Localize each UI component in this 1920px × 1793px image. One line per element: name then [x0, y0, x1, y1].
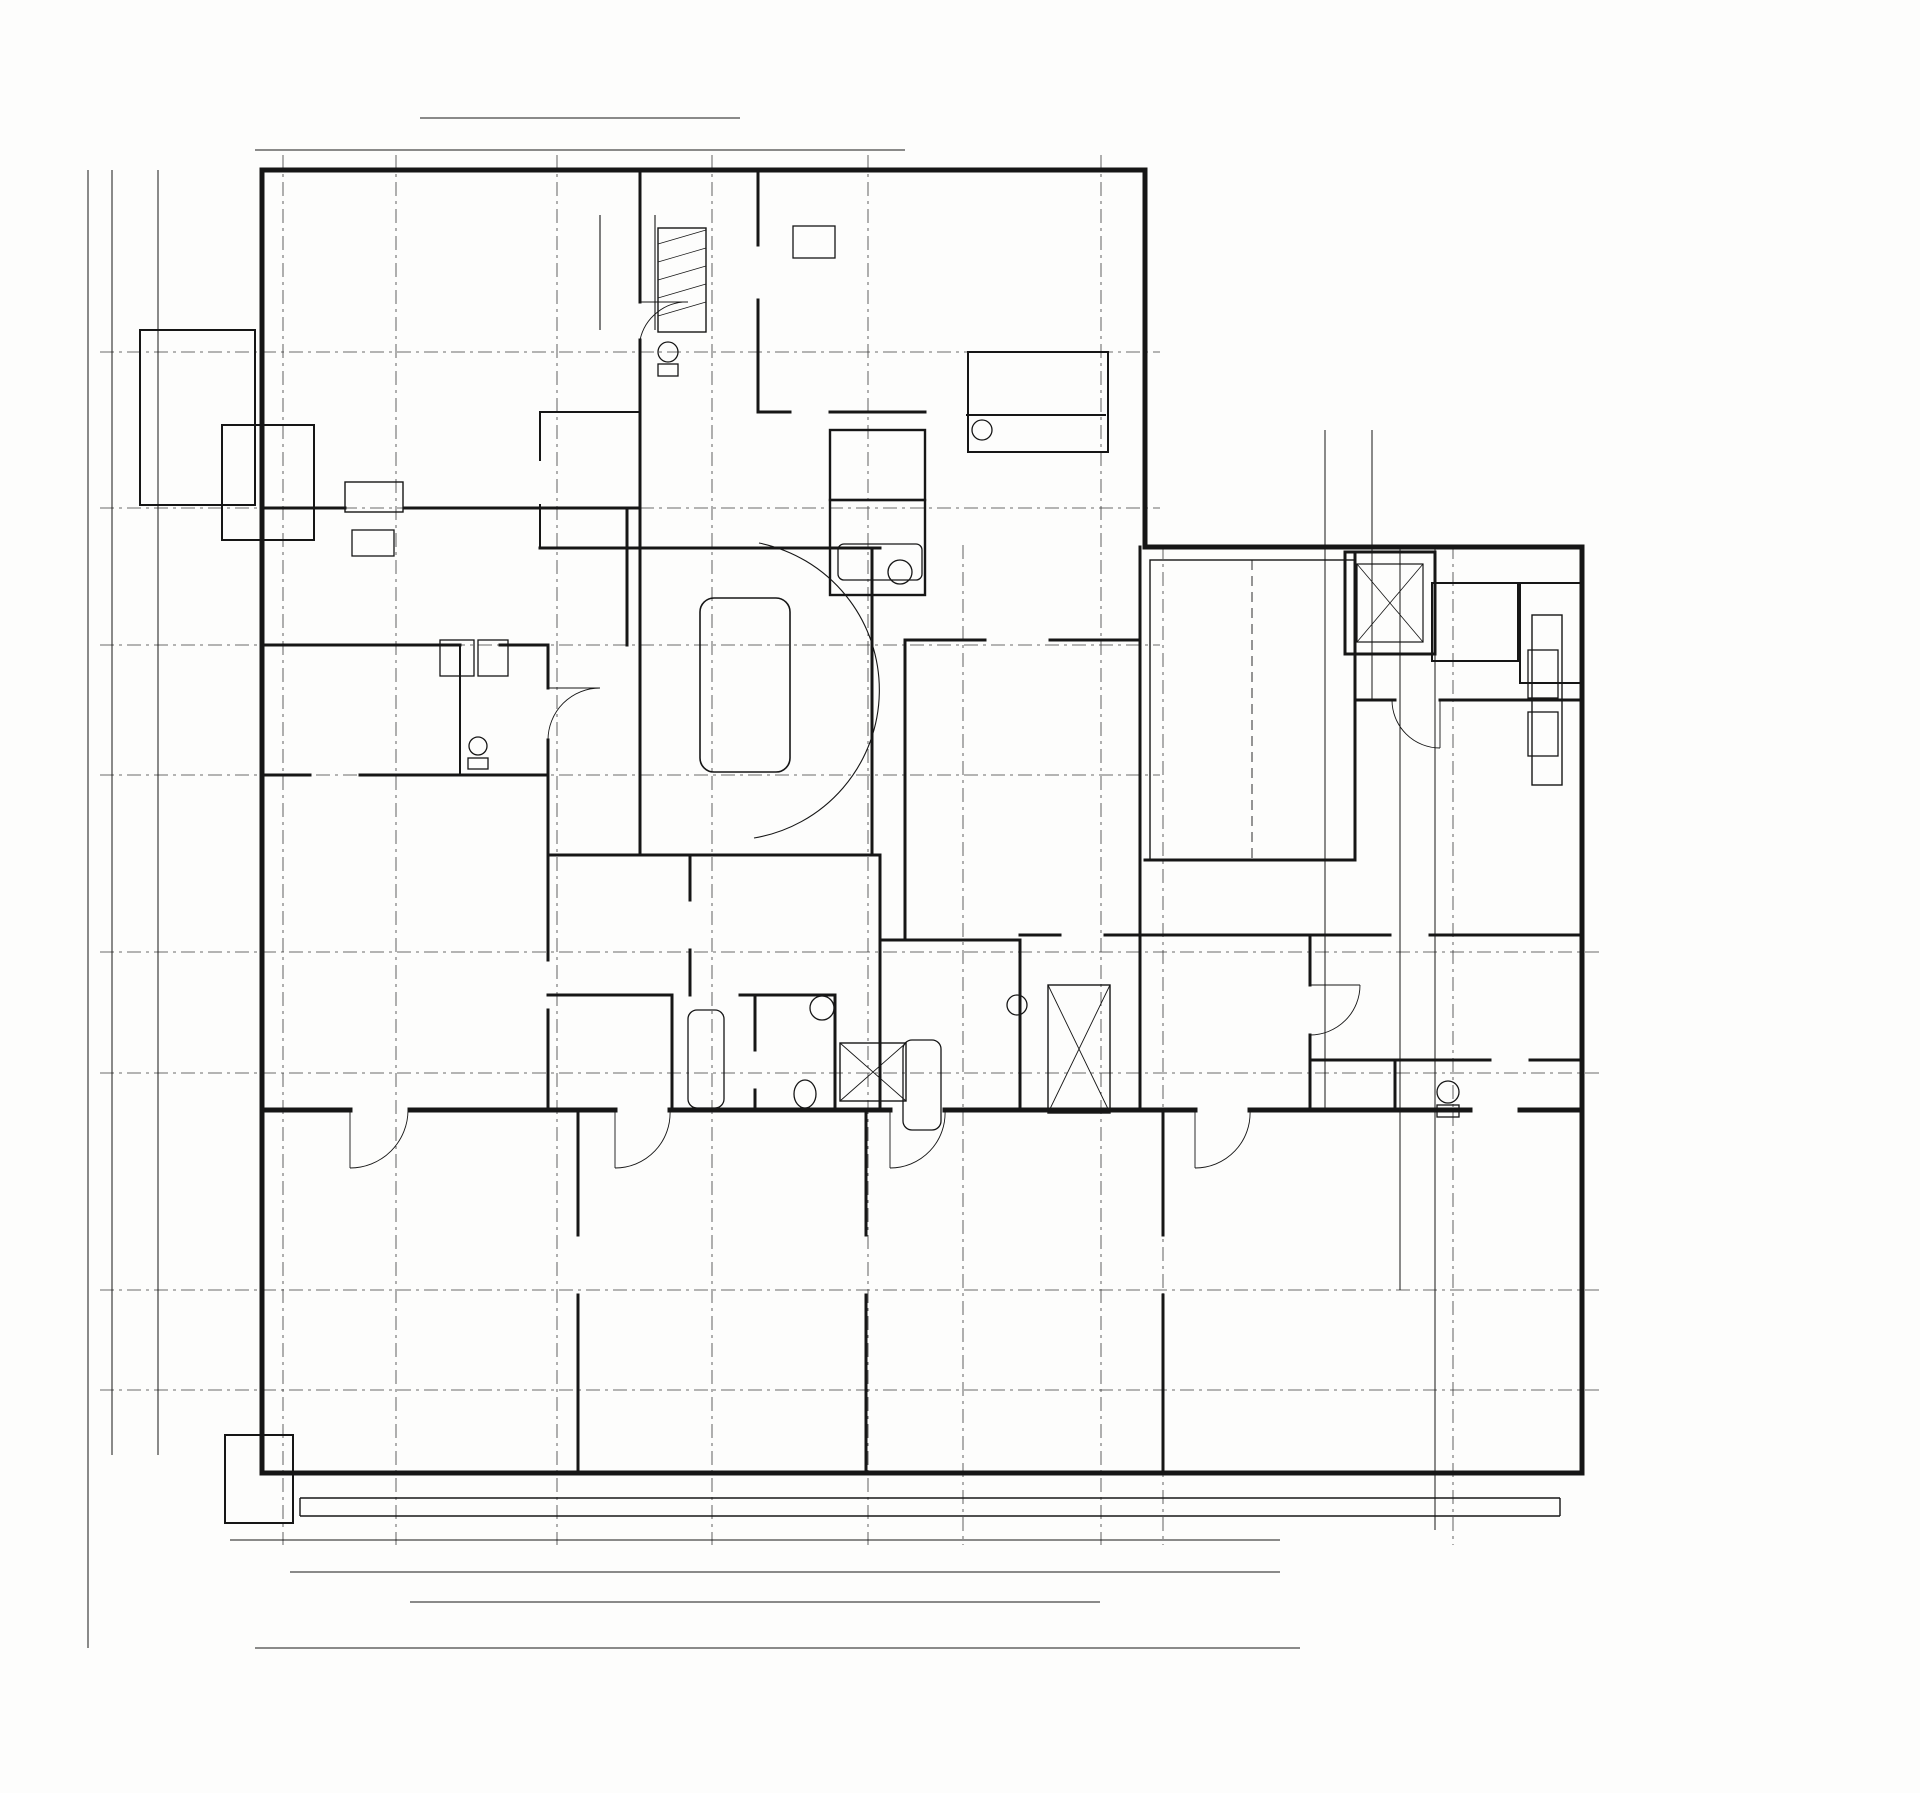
- floor-plan-sheet: [0, 0, 1920, 1793]
- annotations-layer: [0, 0, 1920, 1793]
